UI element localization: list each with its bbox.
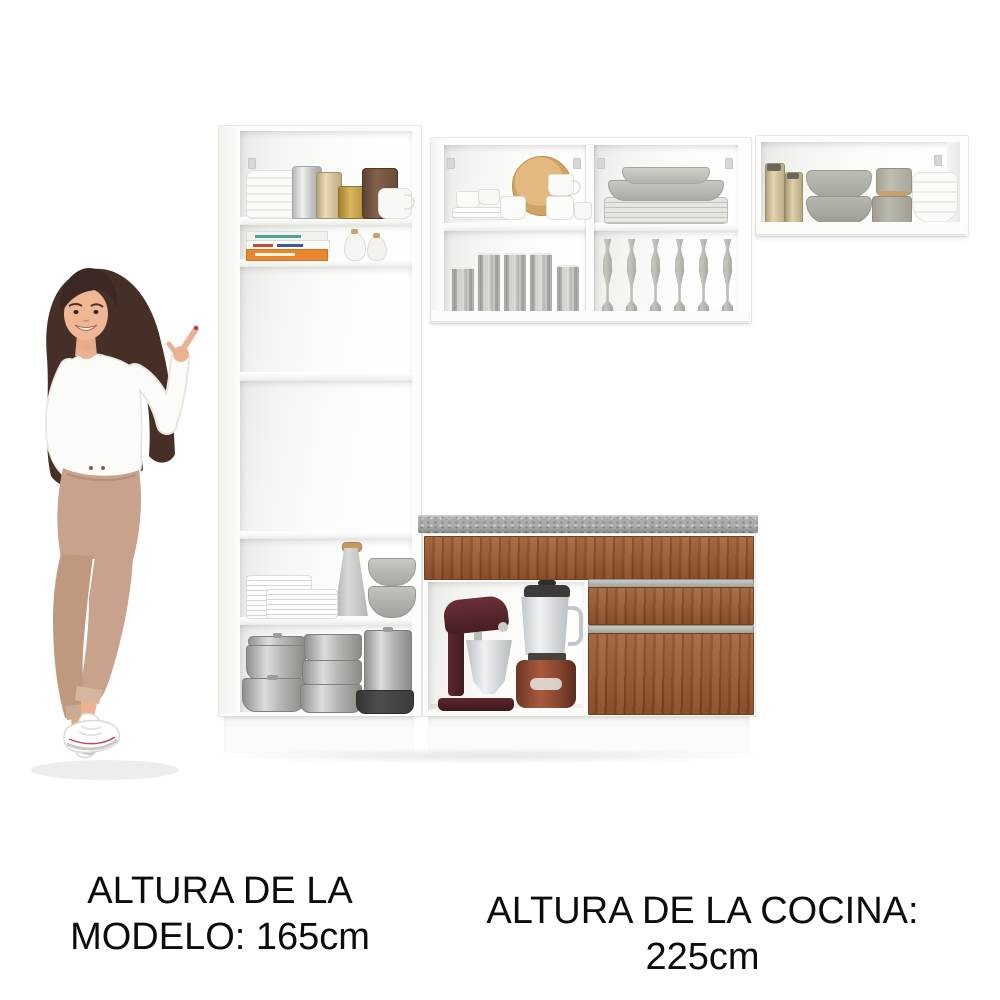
floor-shadow [205,748,775,764]
caption-model-height-line2: MODELO: 165cm [55,914,385,960]
mixer-hub [498,622,508,632]
blender-handle [568,606,583,646]
blender [512,578,584,710]
product-image: ALTURA DE LA MODELO: 165cm ALTURA DE LA … [0,0,1000,1000]
mixer-base [438,698,514,711]
white-bowl-small [500,196,526,220]
stand-mixer [436,592,520,714]
wood-door [588,633,754,715]
caption-kitchen-height: ALTURA DE LA COCINA: 225cm [425,888,980,980]
blender-controls [530,678,562,690]
blender-base [516,660,576,708]
base-cabinet [0,0,1000,1000]
caption-model-height-line1: ALTURA DE LA [55,868,385,914]
caption-model-height: ALTURA DE LA MODELO: 165cm [55,868,385,960]
blender-lid [524,585,570,597]
cast-iron-pan [356,690,414,714]
countertop [418,515,758,533]
blender-jar [518,597,572,655]
mixer-glass-bowl [466,640,512,694]
wood-drawer-top [424,536,754,580]
white-mug [546,196,574,220]
wood-drawer-middle [588,587,754,625]
plate-stack [266,589,338,619]
